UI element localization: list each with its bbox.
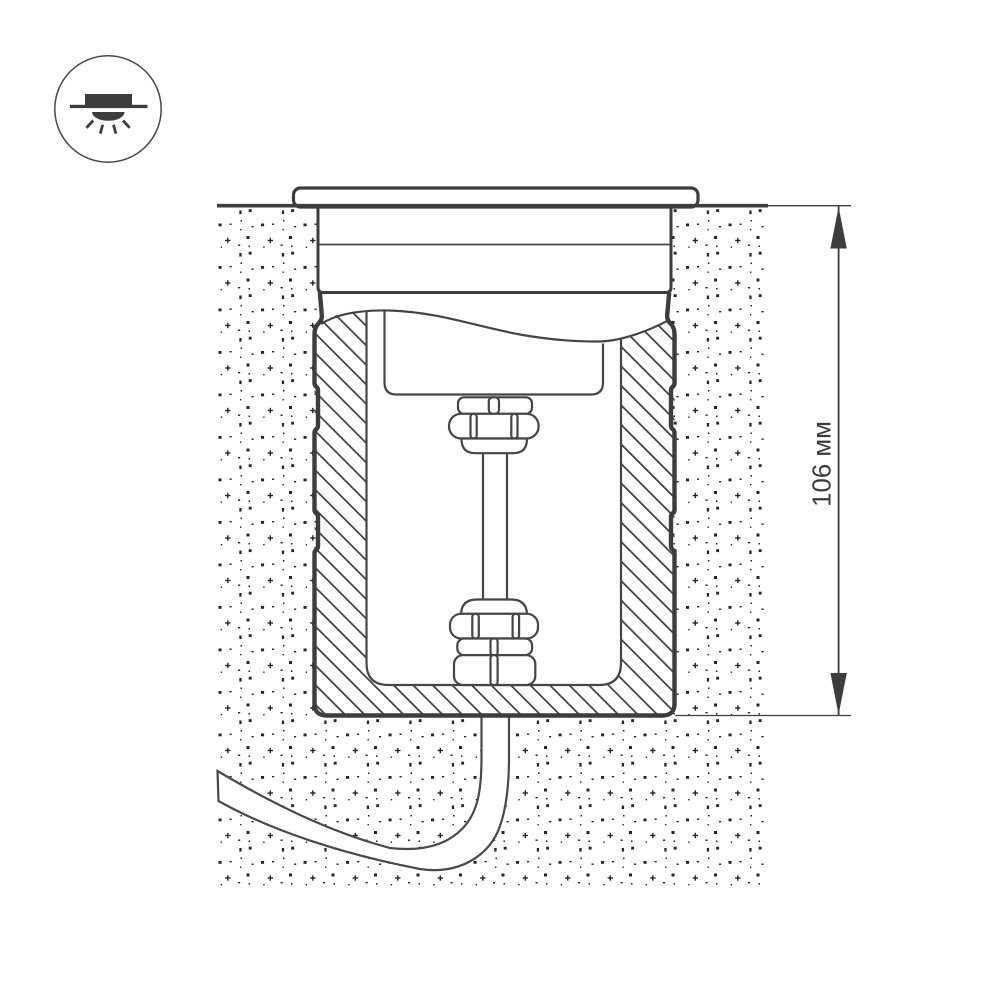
svg-text:106 мм: 106 мм bbox=[809, 421, 837, 507]
